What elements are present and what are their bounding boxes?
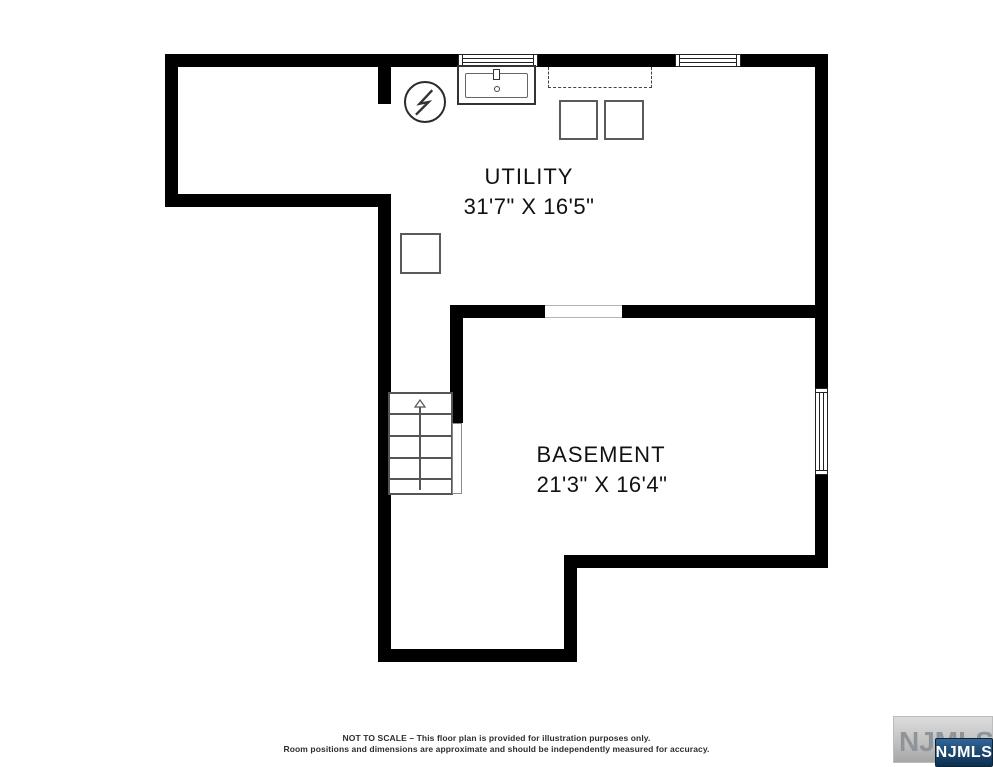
disclaimer-line-1: NOT TO SCALE – This floor plan is provid… <box>0 733 993 744</box>
wall-basement-top-right <box>622 305 828 318</box>
dryer-box <box>604 100 644 140</box>
window-pane <box>819 393 824 470</box>
floor-plan: UTILITY 31'7" X 16'5" BASEMENT 21'3" X 1… <box>0 0 993 767</box>
window-cap <box>815 470 828 475</box>
disclaimer: NOT TO SCALE – This floor plan is provid… <box>0 733 993 754</box>
stairs <box>388 392 453 495</box>
window-icon <box>675 54 741 67</box>
basement-room-label: BASEMENT <box>536 442 665 468</box>
stairs-up-arrow-shaft <box>419 403 421 490</box>
utility-room-label: UTILITY <box>485 164 574 190</box>
window-pane <box>680 58 736 63</box>
wall-left-lobe-bottom <box>165 194 391 207</box>
wall-left <box>165 54 178 207</box>
window-pane <box>463 58 533 63</box>
basement-room-dimensions: 21'3" X 16'4" <box>537 472 668 498</box>
washer-box <box>559 100 598 140</box>
sink-faucet <box>493 69 500 80</box>
electrical-panel-icon <box>404 81 446 123</box>
njmls-logo-text: NJMLS <box>936 744 993 762</box>
lightning-bolt-icon <box>406 83 444 121</box>
stair-railing <box>452 423 462 494</box>
wall-bottom-left-lobe <box>378 649 577 662</box>
support-post-box <box>400 233 441 274</box>
closet-dashed-outline <box>548 67 652 88</box>
window-cap <box>736 54 741 67</box>
wall-opening <box>545 305 622 318</box>
utility-room-dimensions: 31'7" X 16'5" <box>464 194 595 220</box>
njmls-logo-badge: NJMLS <box>935 738 993 767</box>
wall-interior-stub <box>378 54 391 104</box>
wall-step <box>564 555 577 662</box>
stairs-up-arrow-icon <box>414 395 426 413</box>
sink-drain <box>494 86 500 92</box>
disclaimer-line-2: Room positions and dimensions are approx… <box>0 744 993 755</box>
laundry-sink-icon <box>457 65 536 105</box>
window-icon <box>815 388 828 475</box>
wall-basement-bottom <box>564 555 828 568</box>
wall-basement-top-left <box>450 305 545 318</box>
